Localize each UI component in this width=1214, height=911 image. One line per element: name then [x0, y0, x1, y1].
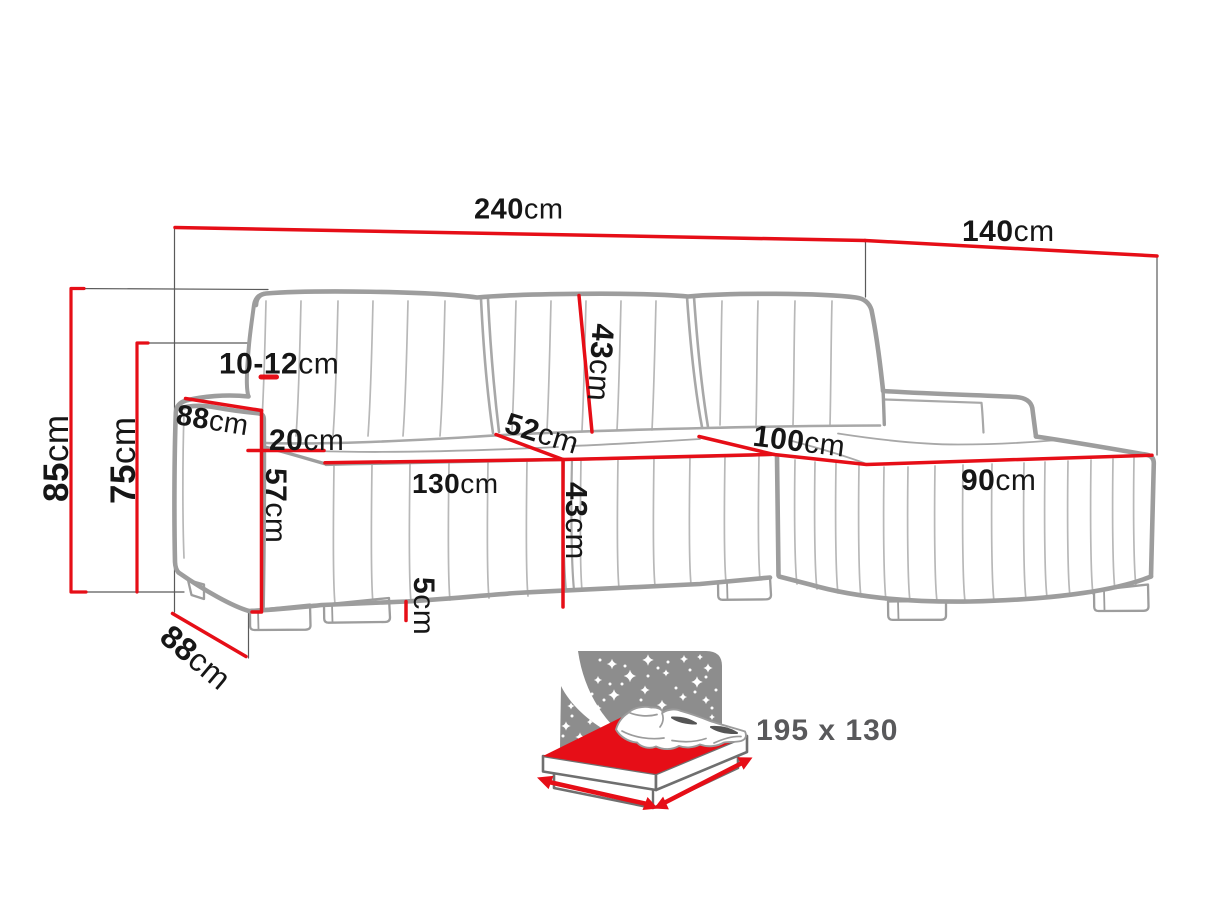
svg-text:20cm: 20cm — [269, 424, 344, 457]
svg-text:75cm: 75cm — [104, 416, 143, 504]
svg-text:90cm: 90cm — [961, 464, 1036, 497]
svg-text:140cm: 140cm — [962, 215, 1055, 248]
svg-text:5cm: 5cm — [407, 577, 440, 635]
svg-text:43cm: 43cm — [581, 323, 621, 403]
svg-text:130cm: 130cm — [412, 468, 499, 499]
svg-text:10-12cm: 10-12cm — [219, 348, 339, 381]
svg-text:195 x 130: 195 x 130 — [756, 714, 898, 747]
svg-text:85cm: 85cm — [37, 414, 76, 502]
svg-text:57cm: 57cm — [259, 468, 292, 543]
svg-text:43cm: 43cm — [559, 482, 594, 560]
svg-text:240cm: 240cm — [474, 194, 564, 226]
